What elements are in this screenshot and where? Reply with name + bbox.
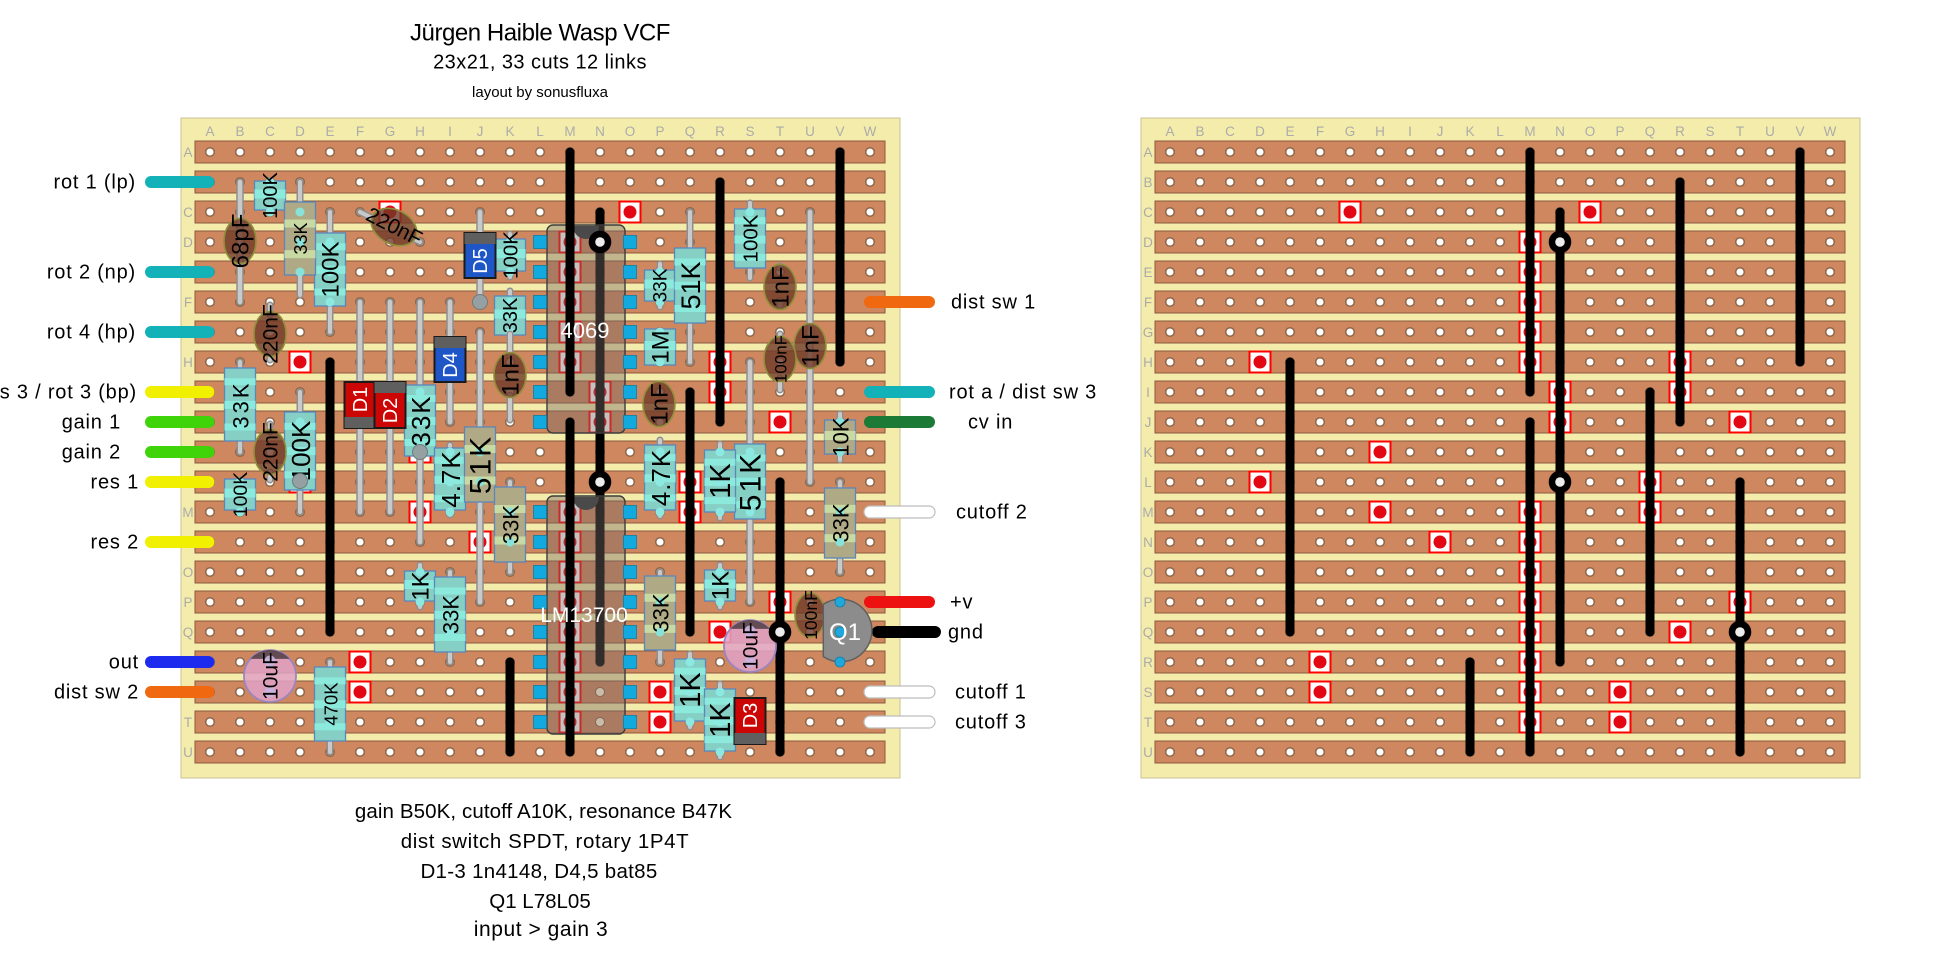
- svg-text:N: N: [595, 124, 605, 139]
- svg-text:L: L: [1144, 475, 1152, 490]
- svg-text:res 3 / rot 3 (bp): res 3 / rot 3 (bp): [0, 382, 137, 404]
- svg-text:F: F: [1144, 295, 1152, 310]
- svg-text:dist sw 2: dist sw 2: [54, 682, 139, 704]
- svg-text:R: R: [715, 124, 725, 139]
- svg-text:H: H: [183, 355, 193, 370]
- svg-text:rot 1 (lp): rot 1 (lp): [54, 172, 136, 194]
- svg-text:A: A: [183, 145, 192, 160]
- svg-text:H: H: [415, 124, 425, 139]
- svg-text:O: O: [1585, 124, 1596, 139]
- svg-text:220nF: 220nF: [260, 304, 283, 364]
- svg-text:P: P: [183, 595, 192, 610]
- svg-text:cutoff 1: cutoff 1: [955, 682, 1027, 704]
- svg-text:H: H: [1375, 124, 1385, 139]
- svg-text:D: D: [295, 124, 305, 139]
- svg-text:D2: D2: [380, 398, 402, 424]
- svg-text:33K: 33K: [229, 380, 254, 428]
- svg-text:33K: 33K: [829, 503, 854, 542]
- svg-text:1K: 1K: [705, 463, 737, 499]
- svg-text:100K: 100K: [318, 241, 345, 297]
- svg-text:1nF: 1nF: [647, 383, 674, 424]
- svg-text:cv in: cv in: [968, 412, 1013, 434]
- svg-text:U: U: [183, 745, 193, 760]
- svg-text:M: M: [1524, 124, 1535, 139]
- svg-text:M: M: [182, 505, 193, 520]
- svg-text:E: E: [1285, 124, 1294, 139]
- svg-text:C: C: [1143, 205, 1153, 220]
- svg-text:10uF: 10uF: [740, 622, 763, 670]
- svg-text:P: P: [655, 124, 664, 139]
- svg-text:33K: 33K: [406, 394, 436, 446]
- svg-text:rot 2 (np): rot 2 (np): [47, 262, 136, 284]
- svg-text:33K: 33K: [499, 505, 524, 544]
- svg-text:68pF: 68pF: [228, 214, 255, 269]
- svg-text:B: B: [235, 124, 244, 139]
- svg-text:S: S: [1143, 685, 1152, 700]
- svg-text:rot a / dist sw 3: rot a / dist sw 3: [949, 382, 1097, 404]
- svg-text:P: P: [1615, 124, 1624, 139]
- svg-text:O: O: [1143, 565, 1154, 580]
- svg-text:dist sw 1: dist sw 1: [951, 292, 1036, 314]
- svg-text:W: W: [864, 124, 877, 139]
- svg-text:E: E: [1143, 265, 1152, 280]
- svg-text:C: C: [1225, 124, 1235, 139]
- svg-text:23x21, 33 cuts 12 links: 23x21, 33 cuts 12 links: [433, 52, 647, 74]
- svg-text:gnd: gnd: [948, 622, 984, 644]
- svg-text:U: U: [1143, 745, 1153, 760]
- svg-text:gain 2: gain 2: [62, 442, 121, 464]
- svg-text:gain 1: gain 1: [62, 412, 121, 434]
- svg-text:T: T: [1144, 715, 1152, 730]
- svg-text:G: G: [1345, 124, 1356, 139]
- svg-text:A: A: [205, 124, 214, 139]
- svg-text:100K: 100K: [286, 420, 316, 481]
- svg-text:U: U: [1765, 124, 1775, 139]
- svg-text:layout by sonusfluxa: layout by sonusfluxa: [472, 84, 609, 101]
- svg-text:LM13700: LM13700: [540, 604, 628, 627]
- svg-text:4069: 4069: [561, 318, 610, 343]
- svg-text:O: O: [183, 565, 194, 580]
- svg-text:F: F: [356, 124, 364, 139]
- svg-text:N: N: [1143, 535, 1153, 550]
- svg-text:D1: D1: [350, 387, 372, 413]
- svg-text:Q1 L78L05: Q1 L78L05: [489, 890, 590, 913]
- svg-text:1K: 1K: [705, 702, 737, 738]
- svg-text:S: S: [1705, 124, 1714, 139]
- svg-text:10uF: 10uF: [260, 652, 283, 700]
- svg-text:Q: Q: [1645, 124, 1656, 139]
- svg-text:cutoff 3: cutoff 3: [955, 712, 1027, 734]
- svg-text:W: W: [1824, 124, 1837, 139]
- svg-text:1nF: 1nF: [798, 325, 825, 366]
- svg-text:G: G: [1143, 325, 1154, 340]
- svg-text:rot 4 (hp): rot 4 (hp): [47, 322, 136, 344]
- svg-text:51K: 51K: [465, 435, 498, 494]
- svg-text:100nF: 100nF: [772, 335, 791, 383]
- svg-text:C: C: [265, 124, 275, 139]
- svg-text:out: out: [109, 652, 139, 674]
- svg-text:L: L: [1496, 124, 1504, 139]
- svg-text:E: E: [325, 124, 334, 139]
- svg-text:Q: Q: [1143, 625, 1154, 640]
- svg-text:V: V: [835, 124, 844, 139]
- svg-text:V: V: [1795, 124, 1804, 139]
- svg-text:+v: +v: [950, 592, 973, 614]
- svg-text:M: M: [1142, 505, 1153, 520]
- svg-text:K: K: [505, 124, 514, 139]
- svg-text:10K: 10K: [829, 417, 854, 456]
- svg-text:D: D: [183, 235, 193, 250]
- svg-text:M: M: [564, 124, 575, 139]
- svg-text:I: I: [1146, 385, 1150, 400]
- svg-text:100nF: 100nF: [801, 590, 821, 640]
- svg-text:F: F: [1316, 124, 1324, 139]
- svg-text:L: L: [536, 124, 544, 139]
- svg-text:Q: Q: [183, 625, 194, 640]
- svg-text:1K: 1K: [408, 571, 435, 600]
- svg-text:N: N: [1555, 124, 1565, 139]
- svg-text:1nF: 1nF: [768, 266, 795, 307]
- svg-text:Q: Q: [685, 124, 696, 139]
- svg-text:R: R: [1143, 655, 1153, 670]
- svg-text:1M: 1M: [648, 330, 675, 363]
- svg-text:33K: 33K: [291, 222, 311, 254]
- svg-text:K: K: [1143, 445, 1152, 460]
- svg-text:G: G: [385, 124, 396, 139]
- svg-text:K: K: [1465, 124, 1474, 139]
- svg-text:B: B: [1143, 175, 1152, 190]
- svg-text:100K: 100K: [740, 214, 763, 262]
- svg-text:4.7K: 4.7K: [436, 450, 466, 508]
- svg-text:A: A: [1143, 145, 1152, 160]
- svg-text:D: D: [1143, 235, 1153, 250]
- svg-text:100K: 100K: [500, 231, 523, 279]
- svg-text:1K: 1K: [708, 571, 735, 600]
- svg-text:100K: 100K: [260, 171, 282, 218]
- svg-text:D: D: [1255, 124, 1265, 139]
- svg-text:B: B: [1195, 124, 1204, 139]
- svg-text:33K: 33K: [500, 297, 522, 333]
- svg-text:S: S: [745, 124, 754, 139]
- svg-text:D1-3 1n4148, D4,5 bat85: D1-3 1n4148, D4,5 bat85: [420, 860, 657, 883]
- svg-text:C: C: [183, 205, 193, 220]
- svg-text:O: O: [625, 124, 636, 139]
- svg-text:res 1: res 1: [91, 472, 139, 494]
- svg-text:33K: 33K: [649, 593, 674, 632]
- svg-text:D4: D4: [440, 352, 462, 378]
- svg-text:cutoff 2: cutoff 2: [956, 502, 1028, 524]
- svg-text:220nF: 220nF: [260, 422, 283, 482]
- svg-text:J: J: [1145, 415, 1152, 430]
- svg-text:J: J: [477, 124, 484, 139]
- svg-text:I: I: [1408, 124, 1412, 139]
- svg-text:T: T: [184, 715, 192, 730]
- svg-text:T: T: [1736, 124, 1744, 139]
- svg-text:gain B50K, cutoff A10K, resona: gain B50K, cutoff A10K, resonance B47K: [355, 800, 732, 823]
- svg-text:4.7K: 4.7K: [646, 449, 676, 507]
- svg-text:P: P: [1143, 595, 1152, 610]
- svg-text:J: J: [1437, 124, 1444, 139]
- svg-text:Jürgen Haible Wasp VCF: Jürgen Haible Wasp VCF: [410, 20, 670, 47]
- svg-text:51K: 51K: [735, 452, 768, 511]
- svg-text:1K: 1K: [675, 672, 707, 708]
- svg-text:33K: 33K: [651, 268, 672, 302]
- svg-text:T: T: [776, 124, 784, 139]
- svg-text:res 2: res 2: [91, 532, 139, 554]
- svg-text:Q1: Q1: [829, 619, 861, 646]
- svg-text:A: A: [1165, 124, 1174, 139]
- svg-text:33K: 33K: [439, 595, 464, 634]
- svg-text:dist switch SPDT, rotary 1P4T: dist switch SPDT, rotary 1P4T: [401, 830, 690, 853]
- svg-text:1nF: 1nF: [498, 354, 525, 395]
- svg-text:51K: 51K: [676, 261, 706, 309]
- svg-text:D5: D5: [470, 248, 492, 274]
- svg-text:R: R: [1675, 124, 1685, 139]
- svg-text:input > gain 3: input > gain 3: [474, 918, 608, 941]
- svg-text:H: H: [1143, 355, 1153, 370]
- svg-text:I: I: [448, 124, 452, 139]
- svg-text:F: F: [184, 295, 192, 310]
- svg-text:D3: D3: [740, 703, 762, 729]
- svg-text:U: U: [805, 124, 815, 139]
- svg-text:470K: 470K: [321, 682, 342, 726]
- svg-text:100K: 100K: [230, 472, 252, 518]
